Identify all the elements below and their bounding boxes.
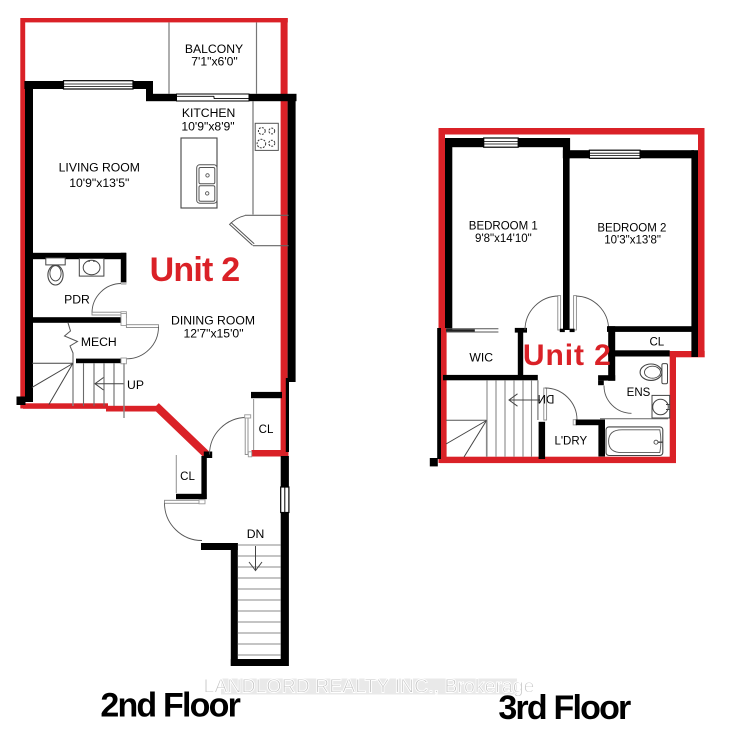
svg-text:7'1"x6'0": 7'1"x6'0" <box>191 54 238 68</box>
svg-text:CL: CL <box>259 424 274 436</box>
svg-text:UP: UP <box>127 378 144 392</box>
svg-text:9'8"x14'10": 9'8"x14'10" <box>475 233 532 245</box>
svg-text:BEDROOM 1: BEDROOM 1 <box>469 221 538 233</box>
svg-text:LANDLORD REALTY INC., Brokerag: LANDLORD REALTY INC., Brokerage <box>204 676 535 698</box>
svg-text:BEDROOM 2: BEDROOM 2 <box>597 222 666 234</box>
svg-text:DN: DN <box>538 394 555 406</box>
svg-text:Unit 2: Unit 2 <box>523 339 612 372</box>
svg-text:L'DRY: L'DRY <box>554 436 587 448</box>
svg-text:10'9"x13'5": 10'9"x13'5" <box>69 176 129 190</box>
svg-text:LIVING ROOM: LIVING ROOM <box>59 161 140 175</box>
svg-text:12'7"x15'0": 12'7"x15'0" <box>183 327 243 341</box>
svg-text:2nd Floor: 2nd Floor <box>100 687 240 725</box>
svg-text:PDR: PDR <box>64 292 90 306</box>
svg-text:MECH: MECH <box>81 335 117 349</box>
svg-text:10'9"x8'9": 10'9"x8'9" <box>181 119 234 133</box>
svg-text:Unit 2: Unit 2 <box>150 251 240 289</box>
svg-text:ENS: ENS <box>627 387 651 399</box>
svg-text:CL: CL <box>649 337 664 349</box>
svg-text:KITCHEN: KITCHEN <box>182 106 236 120</box>
svg-text:WIC: WIC <box>469 350 493 364</box>
svg-text:10'3"x13'8": 10'3"x13'8" <box>604 235 661 247</box>
svg-text:DN: DN <box>247 527 265 541</box>
svg-text:CL: CL <box>180 471 195 483</box>
svg-text:3rd Floor: 3rd Floor <box>498 689 631 727</box>
